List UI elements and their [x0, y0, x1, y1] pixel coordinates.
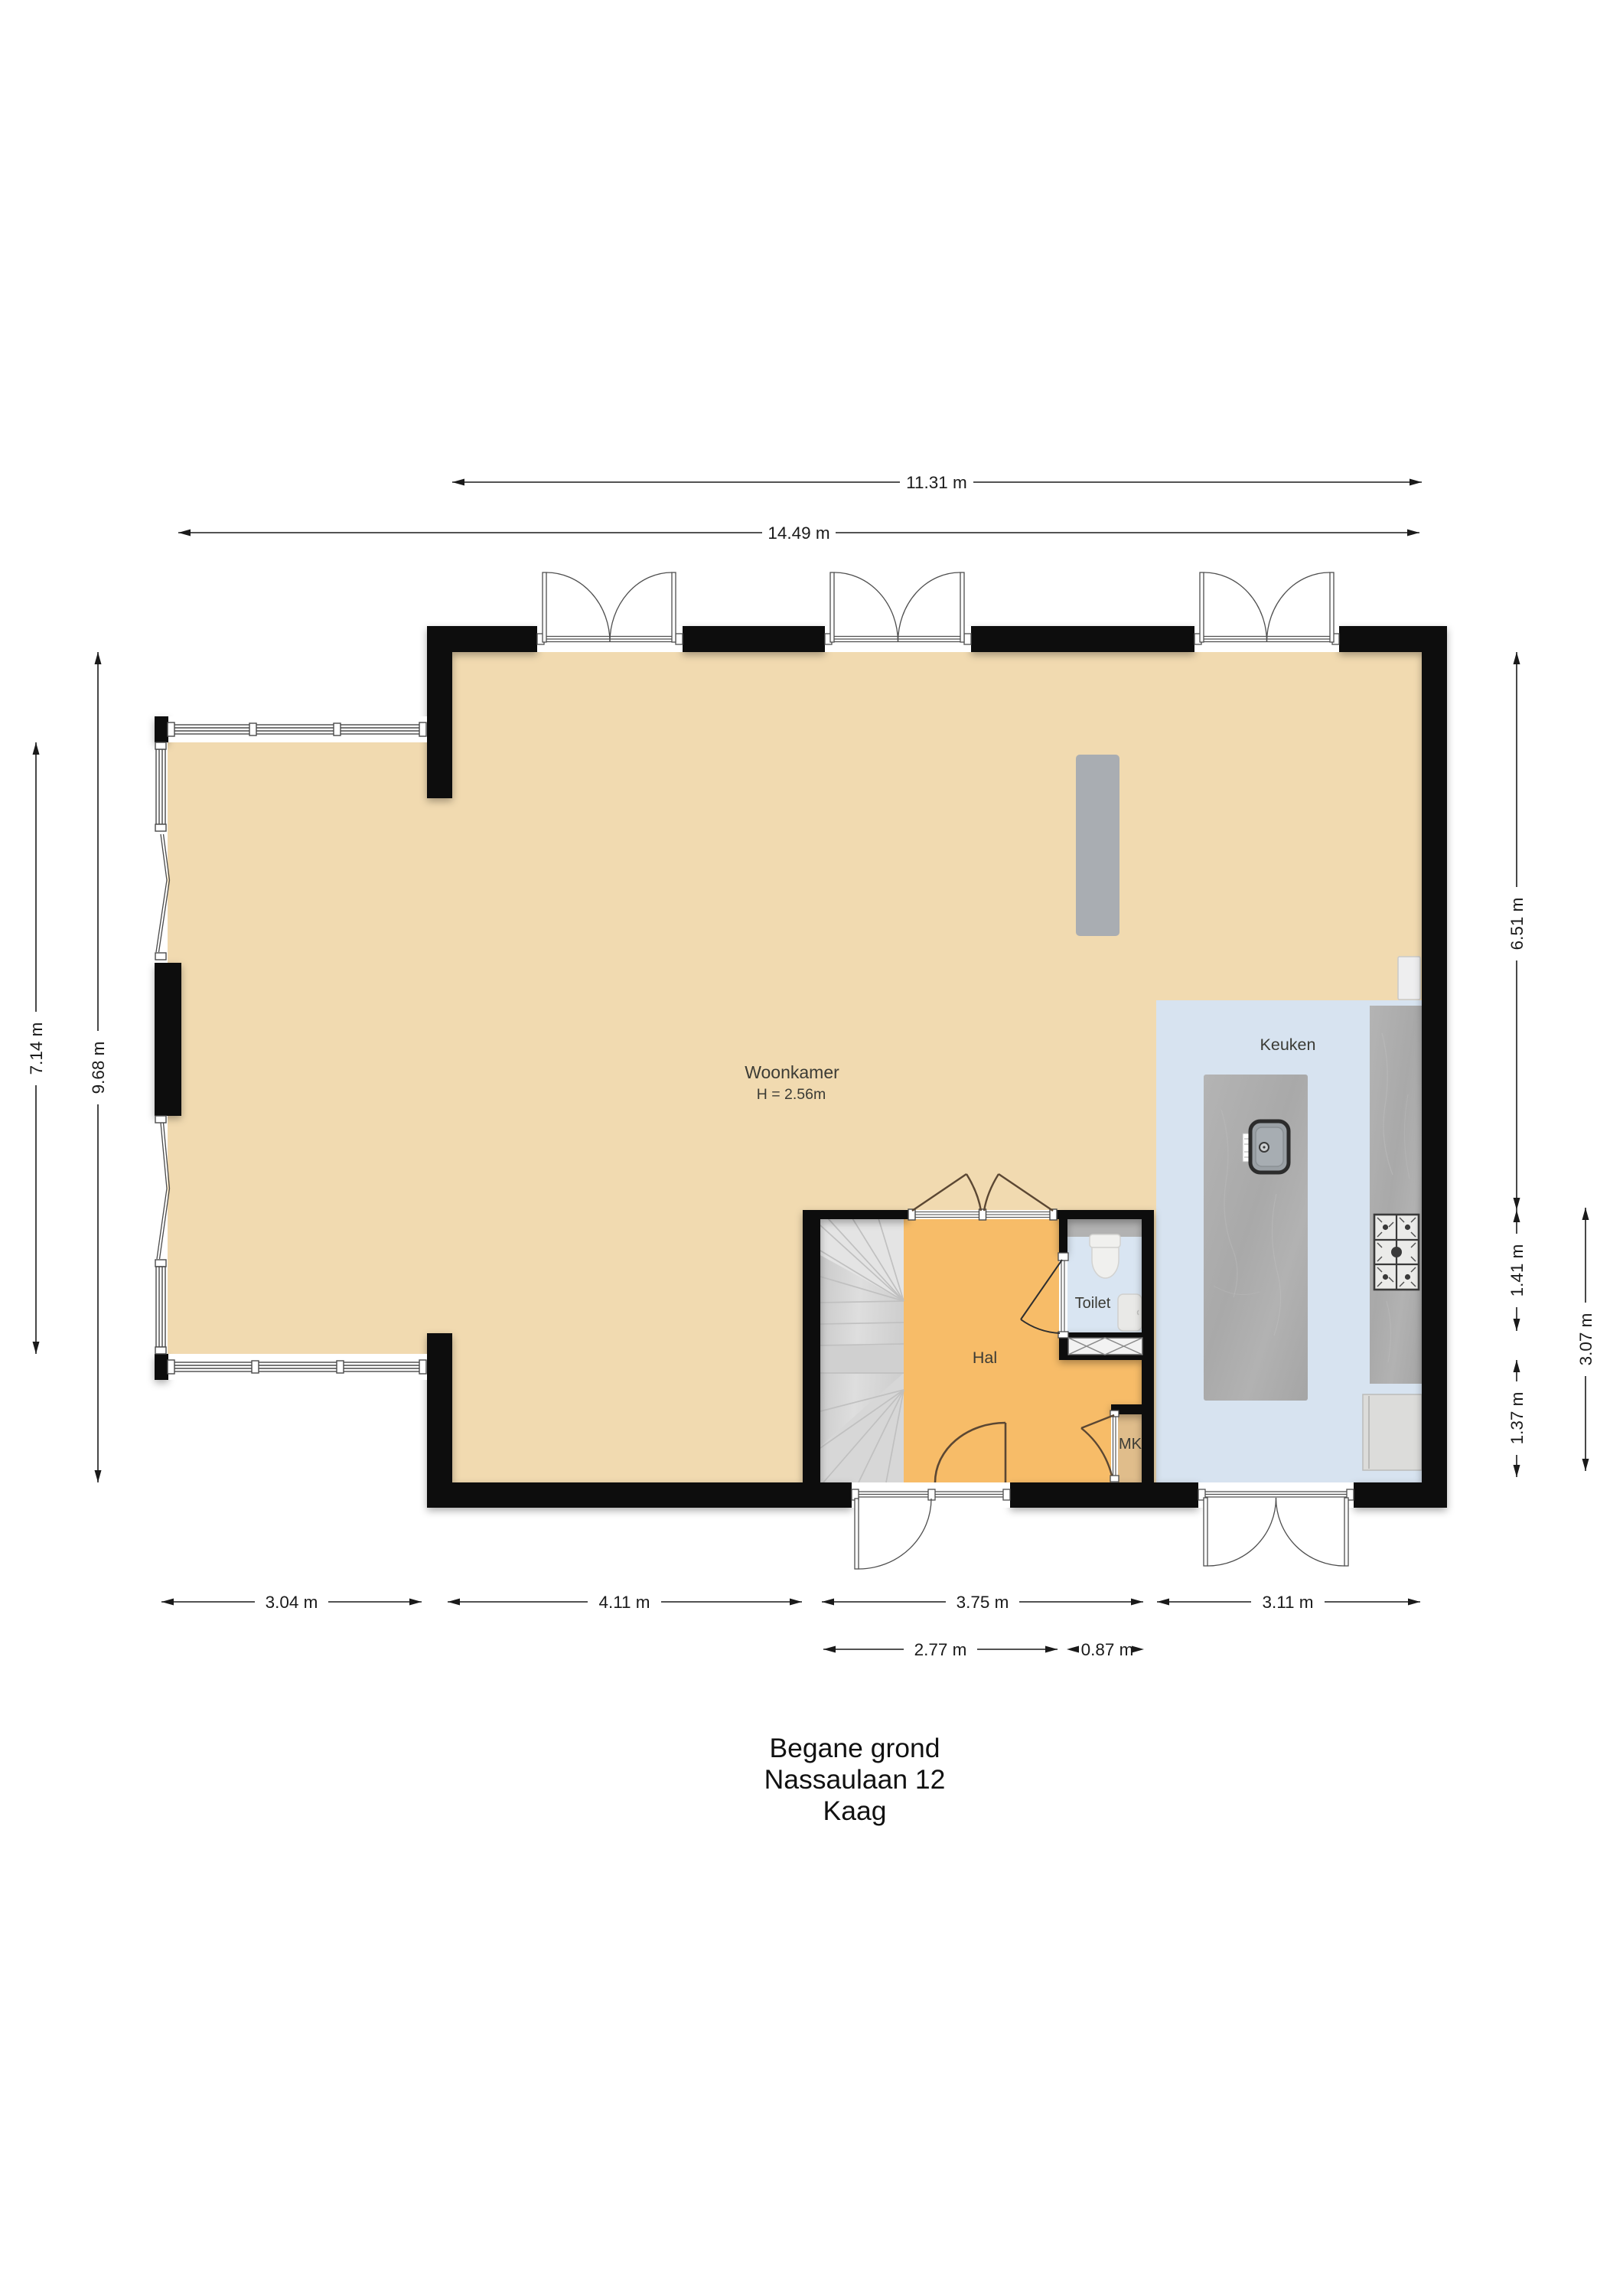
svg-text:3.04 m: 3.04 m — [266, 1593, 318, 1612]
svg-text:Nassaulaan 12: Nassaulaan 12 — [764, 1764, 946, 1795]
svg-text:3.07 m: 3.07 m — [1576, 1313, 1595, 1366]
svg-text:H = 2.56m: H = 2.56m — [757, 1086, 826, 1103]
svg-text:7.14 m: 7.14 m — [27, 1022, 46, 1075]
svg-text:11.31 m: 11.31 m — [906, 473, 967, 492]
svg-text:6.51 m: 6.51 m — [1507, 898, 1527, 951]
svg-text:Toilet: Toilet — [1075, 1295, 1111, 1312]
svg-text:4.11 m: 4.11 m — [598, 1593, 650, 1612]
svg-text:Woonkamer: Woonkamer — [745, 1062, 839, 1082]
svg-text:3.75 m: 3.75 m — [957, 1593, 1009, 1612]
svg-text:Kaag: Kaag — [823, 1795, 887, 1826]
svg-text:1.37 m: 1.37 m — [1507, 1392, 1527, 1445]
svg-text:MK: MK — [1119, 1436, 1142, 1453]
svg-text:Hal: Hal — [973, 1349, 997, 1367]
svg-text:0.87 m: 0.87 m — [1081, 1640, 1134, 1659]
svg-text:Begane grond: Begane grond — [769, 1733, 940, 1763]
svg-text:14.49 m: 14.49 m — [768, 523, 829, 543]
svg-text:1.41 m: 1.41 m — [1507, 1244, 1527, 1297]
svg-text:2.77 m: 2.77 m — [914, 1640, 967, 1659]
svg-text:Keuken: Keuken — [1260, 1035, 1316, 1054]
svg-text:3.11 m: 3.11 m — [1262, 1593, 1313, 1612]
svg-text:9.68 m: 9.68 m — [89, 1042, 108, 1094]
